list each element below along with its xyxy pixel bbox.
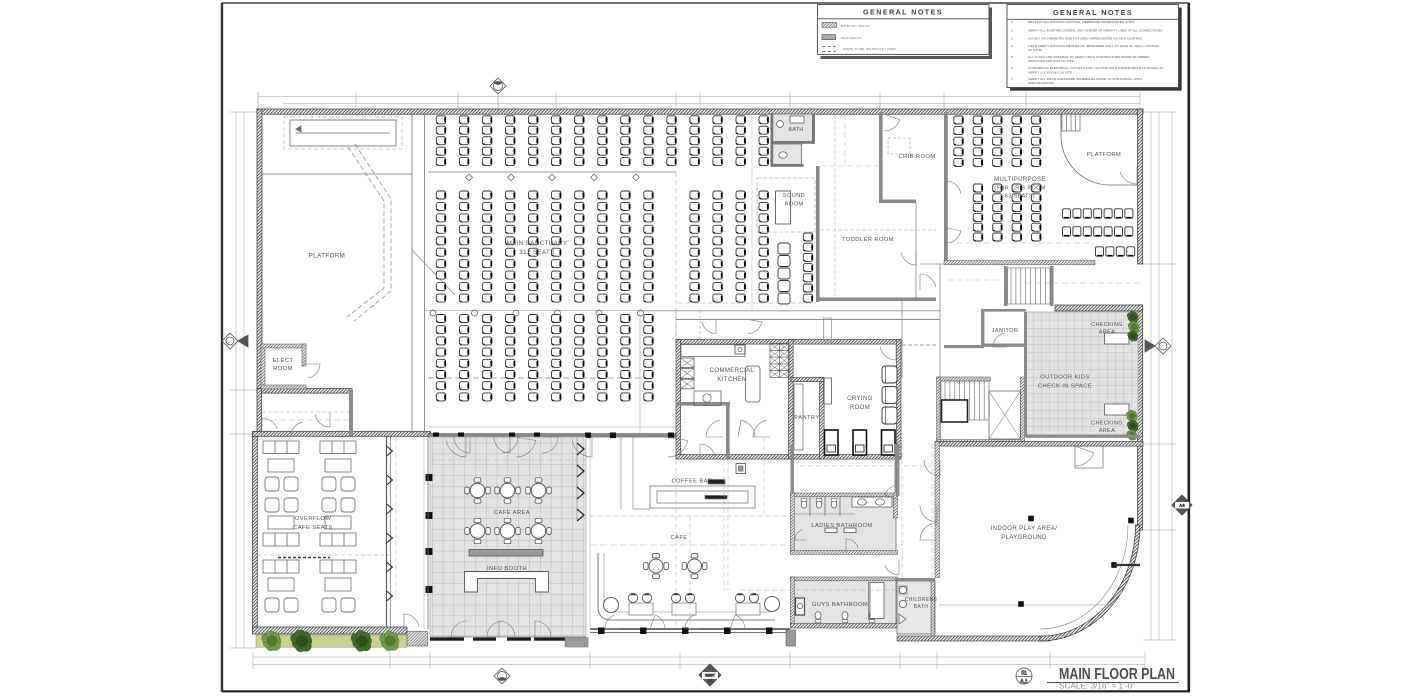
svg-text:COFFEE BAR: COFFEE BAR xyxy=(671,479,712,485)
svg-text:(FOR CRIB ROOM: (FOR CRIB ROOM xyxy=(994,186,1046,192)
svg-text:MAIN FLOOR PLAN: MAIN FLOOR PLAN xyxy=(1059,666,1175,683)
svg-text:PROTECT ALL EXISTING FOOTING,: PROTECT ALL EXISTING FOOTING, MEMBRANE I… xyxy=(1028,20,1135,24)
svg-text:EXISTING WALLS: EXISTING WALLS xyxy=(841,24,869,28)
svg-text:APPROVED MOCKUP ON SITE: APPROVED MOCKUP ON SITE xyxy=(1028,59,1074,63)
svg-text:CAFE: CAFE xyxy=(670,535,687,541)
svg-text:BATH: BATH xyxy=(788,127,803,133)
svg-text:WEST: WEST xyxy=(705,674,715,678)
svg-text:OF STUD: OF STUD xyxy=(1028,48,1043,52)
svg-text:A.1: A.1 xyxy=(1020,679,1028,685)
svg-text:SPECIFICATIONS: SPECIFICATIONS xyxy=(1028,81,1054,85)
svg-text:63 SEATS): 63 SEATS) xyxy=(1005,194,1035,200)
svg-text:VERIFY ALL EXISTING LATERAL AN: VERIFY ALL EXISTING LATERAL AND CENTER O… xyxy=(1028,29,1162,33)
svg-text:CHECKING: CHECKING xyxy=(1091,421,1123,427)
svg-text:KITCHEN: KITCHEN xyxy=(717,377,746,383)
svg-text:6.: 6. xyxy=(1011,66,1014,70)
svg-text:SCALE: 3/16” = 1’-0”: SCALE: 3/16” = 1’-0” xyxy=(1059,682,1135,691)
svg-text:OVERFLOW: OVERFLOW xyxy=(295,516,332,522)
svg-text:7.: 7. xyxy=(1011,77,1014,81)
svg-text:ROOM: ROOM xyxy=(784,202,803,208)
svg-text:A.3: A.3 xyxy=(1179,504,1184,508)
svg-text:CHILDRENS: CHILDRENS xyxy=(905,597,938,603)
svg-text:INFO BOOTH: INFO BOOTH xyxy=(487,566,527,572)
svg-text:VERIFY LOCATIONS ON SITE: VERIFY LOCATIONS ON SITE xyxy=(1028,70,1072,74)
svg-text:MULTIPURPOSE: MULTIPURPOSE xyxy=(994,177,1046,183)
svg-text:PLATFORM: PLATFORM xyxy=(309,253,345,260)
svg-text:ITEMS TO BE INSTALLED LATER: ITEMS TO BE INSTALLED LATER xyxy=(843,47,897,51)
svg-text:3.: 3. xyxy=(1011,37,1014,41)
svg-text:FIELD VERIFY EXISTING PROFILE: FIELD VERIFY EXISTING PROFILE OF IMPRESS… xyxy=(1028,44,1160,48)
svg-text:CAFE AREA: CAFE AREA xyxy=(494,510,530,516)
svg-text:PLATFORM: PLATFORM xyxy=(1087,152,1121,158)
svg-text:LADIES BATHROOM: LADIES BATHROOM xyxy=(811,523,872,529)
svg-text:SOUND: SOUND xyxy=(783,193,805,199)
svg-text:CHECKING: CHECKING xyxy=(1091,322,1123,328)
svg-text:A.3: A.3 xyxy=(707,679,712,683)
svg-text:CAFE SEATS: CAFE SEATS xyxy=(293,525,333,531)
svg-text:01: 01 xyxy=(1021,671,1027,677)
svg-text:NEW WALLS: NEW WALLS xyxy=(841,36,861,40)
svg-text:2.: 2. xyxy=(1011,29,1014,33)
svg-text:PANTRY: PANTRY xyxy=(794,415,819,421)
svg-text:AREA: AREA xyxy=(1099,428,1115,434)
svg-text:5.: 5. xyxy=(1011,55,1014,59)
svg-text:GENERAL NOTES: GENERAL NOTES xyxy=(1053,8,1133,17)
svg-text:CRYING: CRYING xyxy=(847,396,873,402)
svg-text:ROOM: ROOM xyxy=(850,405,870,411)
svg-text:MAIN SANCTUARY: MAIN SANCTUARY xyxy=(507,240,568,247)
svg-text:AREA: AREA xyxy=(1099,330,1115,336)
svg-text:COMMERCIAL: COMMERCIAL xyxy=(710,368,755,374)
svg-text:CHECK IN SPACE: CHECK IN SPACE xyxy=(1038,384,1092,390)
svg-text:ROOM: ROOM xyxy=(273,366,293,372)
svg-text:BATH: BATH xyxy=(914,604,929,610)
svg-text:GUYS BATHROOM: GUYS BATHROOM xyxy=(812,602,868,608)
svg-text:CRIB ROOM: CRIB ROOM xyxy=(898,154,935,160)
svg-text:ELECT: ELECT xyxy=(273,358,294,364)
svg-text:JANITOR: JANITOR xyxy=(992,328,1019,334)
svg-text:312 SEATS: 312 SEATS xyxy=(519,249,554,256)
svg-text:TODDLER ROOM: TODDLER ROOM xyxy=(842,237,894,243)
svg-text:PLAYGROUND: PLAYGROUND xyxy=(1001,535,1047,541)
svg-text:GENERAL NOTES: GENERAL NOTES xyxy=(863,8,943,17)
svg-text:LAYOUT OF CABINETRY AND FIXTUR: LAYOUT OF CABINETRY AND FIXTURES IMPREGN… xyxy=(1028,37,1142,41)
svg-text:INDOOR PLAY AREA/: INDOOR PLAY AREA/ xyxy=(991,526,1058,532)
svg-text:1.: 1. xyxy=(1011,20,1014,24)
svg-text:4.: 4. xyxy=(1011,44,1014,48)
svg-text:OUTDOOR KIDS: OUTDOOR KIDS xyxy=(1040,375,1090,381)
